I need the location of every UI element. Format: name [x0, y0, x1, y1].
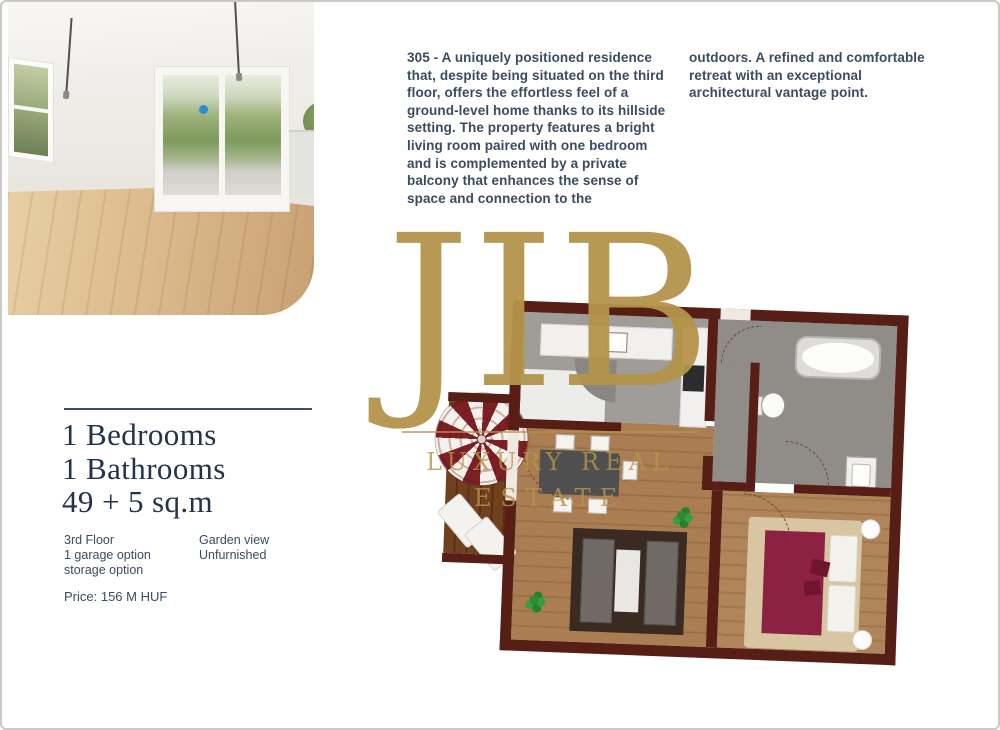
- pendant-bulb-icon: [63, 91, 70, 99]
- description-column-1: 305 - A uniquely positioned residence th…: [407, 49, 669, 207]
- logo-tagline-line1: LUXURY REAL: [364, 448, 736, 476]
- logo-tagline-line2: ESTATE: [364, 484, 736, 512]
- price-label: Price: 156 M HUF: [64, 589, 167, 604]
- sofa-seat: [644, 541, 679, 626]
- wall-balcony-bottom: [442, 553, 514, 565]
- sofa-seat: [580, 538, 615, 623]
- features-column-1: 3rd Floor 1 garage option storage option: [64, 533, 151, 577]
- sink-basin: [851, 464, 871, 488]
- bed-pillow: [826, 585, 856, 633]
- door-mullion: [219, 75, 225, 195]
- bathrooms-line: 1 Bathrooms: [62, 452, 362, 486]
- apartment-photo: [8, 2, 314, 315]
- furnishing-feature: Unfurnished: [199, 548, 269, 563]
- cooktop-icon: [683, 365, 705, 392]
- parasol-hub: [476, 434, 486, 444]
- balcony-glass-railing: [289, 130, 314, 196]
- logo-divider-line: [402, 431, 698, 433]
- view-feature: Garden view: [199, 533, 269, 548]
- sofa-table: [614, 550, 640, 613]
- garage-feature: 1 garage option: [64, 548, 151, 563]
- brochure-page: 305 - A uniquely positioned residence th…: [0, 0, 1000, 730]
- bed-cushion: [803, 580, 820, 596]
- photo-left-window: [8, 57, 54, 163]
- door-glass-right: [225, 75, 281, 195]
- divider-line: [64, 408, 312, 410]
- blue-sign-icon: [199, 105, 208, 114]
- photo-balcony-door: [154, 66, 290, 212]
- bed-pillow: [828, 535, 858, 583]
- bedrooms-line: 1 Bedrooms: [62, 418, 362, 452]
- bathtub-basin: [801, 342, 874, 375]
- bathtub-icon: [794, 335, 882, 380]
- features-column-2: Garden view Unfurnished: [199, 533, 269, 563]
- kitchen-sink-icon: [605, 332, 628, 353]
- entry-door-gap: [720, 308, 750, 320]
- door-glass-left: [163, 75, 219, 195]
- floor-feature: 3rd Floor: [64, 533, 151, 548]
- sofa: [569, 528, 687, 635]
- description-column-2: outdoors. A refined and comfortable retr…: [689, 49, 941, 102]
- summary-headline: 1 Bedrooms 1 Bathrooms 49 + 5 sq.m: [62, 418, 362, 519]
- pendant-bulb-icon: [236, 73, 242, 81]
- area-line: 49 + 5 sq.m: [62, 485, 362, 519]
- storage-feature: storage option: [64, 563, 151, 578]
